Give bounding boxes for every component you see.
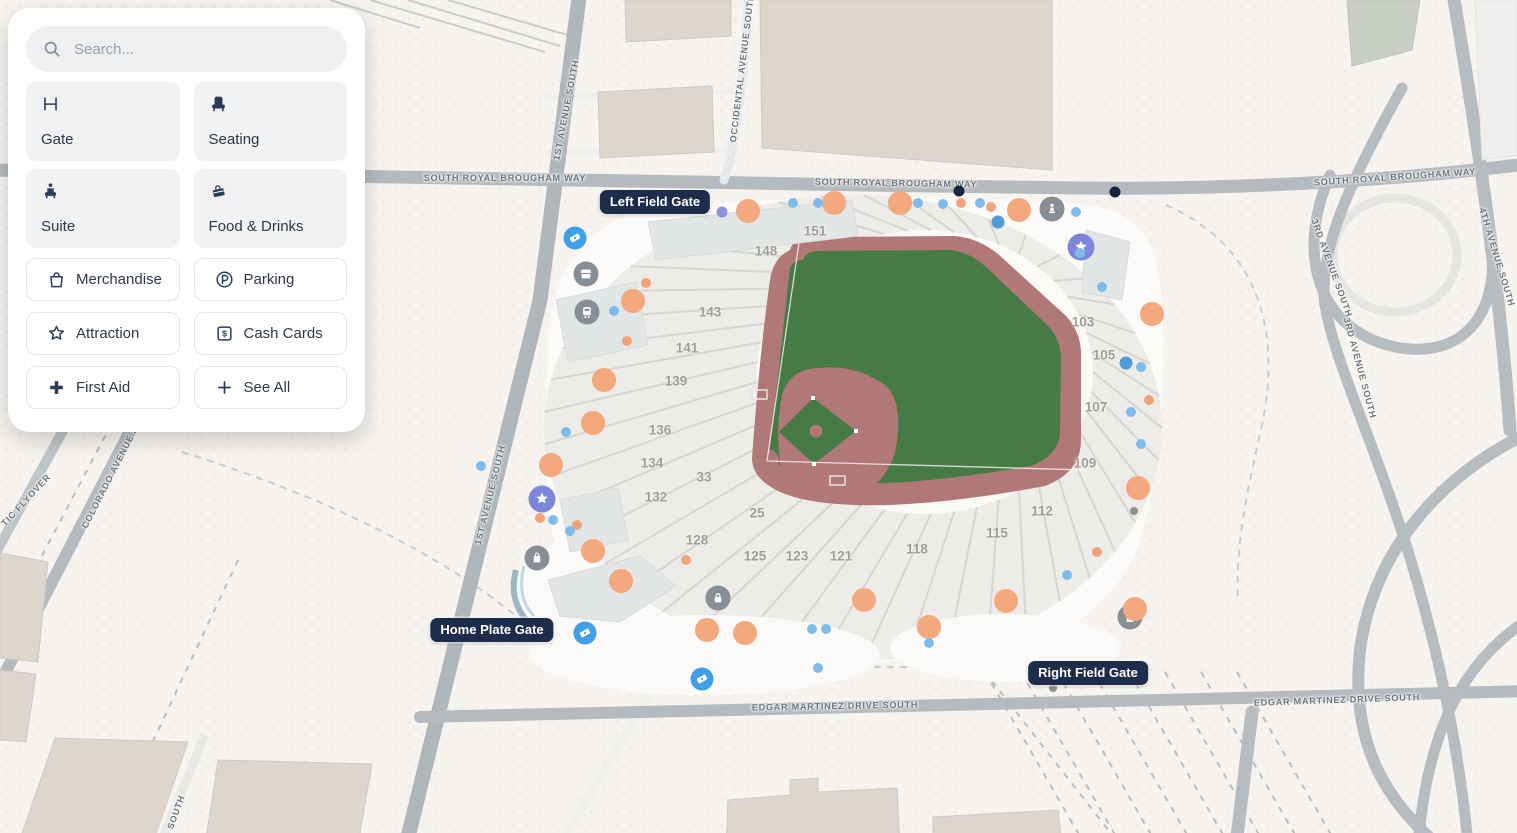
category-label: Merchandise — [76, 271, 162, 288]
marker-orange-large[interactable] — [1140, 302, 1164, 326]
section-number[interactable]: 118 — [906, 542, 928, 557]
section-number[interactable]: 143 — [699, 305, 722, 320]
marker-blue-small[interactable] — [813, 198, 823, 208]
category-first-aid[interactable]: First Aid — [26, 366, 180, 409]
marker-orange-small[interactable] — [681, 555, 691, 565]
marker-ticket[interactable] — [691, 668, 714, 691]
marker-blue-small[interactable] — [561, 427, 571, 437]
marker-blue-small[interactable] — [1126, 407, 1136, 417]
section-number[interactable]: 132 — [645, 490, 668, 505]
marker-blue-small[interactable] — [788, 198, 798, 208]
search-input[interactable] — [72, 40, 331, 59]
marker-statue[interactable] — [1040, 197, 1065, 222]
first-aid-icon — [47, 378, 66, 397]
marker-orange-large[interactable] — [621, 289, 645, 313]
marker-blue-small[interactable] — [1136, 439, 1146, 449]
marker-orange-small[interactable] — [956, 198, 966, 208]
section-number[interactable]: 123 — [786, 549, 809, 564]
marker-blue-small[interactable] — [1136, 362, 1146, 372]
marker-orange-small[interactable] — [1092, 547, 1102, 557]
street-label: 3RD AVENUE SOUTH — [1342, 317, 1379, 420]
marker-orange-large[interactable] — [994, 589, 1018, 613]
category-label: First Aid — [76, 379, 130, 396]
marker-orange-large[interactable] — [888, 191, 912, 215]
category-label: Suite — [41, 218, 75, 235]
marker-blue-small[interactable] — [807, 624, 817, 634]
section-number[interactable]: 25 — [749, 506, 764, 521]
marker-orange-small[interactable] — [986, 202, 996, 212]
marker-blue-small[interactable] — [813, 663, 823, 673]
category-label: Gate — [41, 131, 74, 148]
section-number[interactable]: 115 — [986, 526, 1008, 541]
category-attraction[interactable]: Attraction — [26, 312, 180, 355]
marker-blue-small[interactable] — [1097, 282, 1107, 292]
street-label: OCCIDENTAL AVENUE SOUTH — [728, 0, 756, 143]
street-label: 1ST AVENUE SOUTH — [473, 444, 507, 546]
marker-blue-small[interactable] — [1075, 248, 1085, 258]
section-number[interactable]: 148 — [755, 244, 778, 259]
section-number[interactable]: 103 — [1072, 315, 1095, 330]
section-number[interactable]: 33 — [696, 470, 711, 485]
marker-ticket[interactable] — [564, 227, 587, 250]
marker-ticket[interactable] — [574, 622, 597, 645]
marker-orange-large[interactable] — [581, 539, 605, 563]
category-grid-secondary: MerchandiseParkingAttraction$Cash CardsF… — [26, 258, 347, 409]
street-label: 4TH AVENUE SOUTH — [1477, 206, 1517, 307]
marker-orange-large[interactable] — [1126, 476, 1150, 500]
section-number[interactable]: 141 — [676, 341, 699, 356]
suite-icon — [41, 182, 60, 201]
street-label: EDGAR MARTINEZ DRIVE SOUTH — [752, 700, 918, 713]
street-label: 3RD AVENUE SOUTH — [1310, 218, 1355, 319]
category-label: Cash Cards — [244, 325, 323, 342]
marker-blue-small[interactable] — [975, 198, 985, 208]
category-seating[interactable]: Seating — [194, 82, 348, 161]
marker-blue-small[interactable] — [938, 199, 948, 209]
street-label: 1ST AVENUE SOUTH — [551, 59, 580, 161]
section-number[interactable]: 107 — [1085, 400, 1108, 415]
category-gate[interactable]: Gate — [26, 82, 180, 161]
marker-gray-dot[interactable] — [1130, 507, 1138, 515]
marker-blue-medium[interactable] — [992, 216, 1005, 229]
category-label: See All — [244, 379, 291, 396]
marker-blue-small[interactable] — [1062, 570, 1072, 580]
map-label-home-plate-gate[interactable]: Home Plate Gate — [430, 618, 553, 642]
svg-text:$: $ — [222, 329, 227, 339]
section-number[interactable]: 134 — [641, 456, 664, 471]
street-label: EDGAR MARTINEZ DRIVE SOUTH — [1254, 692, 1421, 708]
seating-icon — [209, 95, 228, 114]
marker-orange-large[interactable] — [1007, 198, 1031, 222]
marker-blue-small[interactable] — [913, 198, 923, 208]
marker-orange-large[interactable] — [917, 615, 941, 639]
marker-orange-small[interactable] — [1144, 395, 1154, 405]
category-food-drinks[interactable]: Food & Drinks — [194, 169, 348, 248]
marker-blue-small[interactable] — [565, 526, 575, 536]
marker-gray-dot[interactable] — [1049, 684, 1057, 692]
section-number[interactable]: 136 — [649, 423, 672, 438]
marker-orange-large[interactable] — [736, 199, 760, 223]
marker-blue-small[interactable] — [609, 306, 619, 316]
marker-star[interactable] — [529, 486, 556, 513]
marker-navy-dot[interactable] — [1110, 187, 1121, 198]
section-number[interactable]: 105 — [1093, 348, 1116, 363]
marker-blue-small[interactable] — [548, 515, 558, 525]
merchandise-icon — [47, 270, 66, 289]
marker-orange-large[interactable] — [609, 569, 633, 593]
category-suite[interactable]: Suite — [26, 169, 180, 248]
section-number[interactable]: 121 — [830, 549, 853, 564]
parking-icon — [215, 270, 234, 289]
street-label: COLORADO AVENUE S — [80, 424, 140, 530]
category-label: Food & Drinks — [209, 218, 304, 235]
marker-orange-large[interactable] — [592, 368, 616, 392]
marker-blue-medium[interactable] — [1120, 357, 1133, 370]
marker-lavender[interactable] — [717, 207, 728, 218]
marker-navy-dot[interactable] — [954, 186, 965, 197]
category-label: Attraction — [76, 325, 139, 342]
marker-orange-small[interactable] — [641, 278, 651, 288]
map-label-left-field-gate[interactable]: Left Field Gate — [600, 190, 710, 214]
marker-orange-large[interactable] — [1123, 597, 1147, 621]
section-number[interactable]: 128 — [686, 533, 709, 548]
category-grid-primary: GateSeatingSuiteFood & Drinks — [26, 82, 347, 248]
search-icon — [42, 39, 62, 59]
marker-shop[interactable] — [574, 262, 599, 287]
marker-orange-small[interactable] — [622, 336, 632, 346]
marker-orange-large[interactable] — [695, 618, 719, 642]
marker-orange-large[interactable] — [822, 191, 846, 215]
category-cash-cards[interactable]: $Cash Cards — [194, 312, 348, 355]
map-label-right-field-gate[interactable]: Right Field Gate — [1028, 661, 1148, 685]
category-merchandise[interactable]: Merchandise — [26, 258, 180, 301]
search-box[interactable] — [26, 26, 347, 72]
marker-orange-large[interactable] — [733, 621, 757, 645]
category-see-all[interactable]: See All — [194, 366, 348, 409]
marker-orange-large[interactable] — [581, 411, 605, 435]
section-number[interactable]: 112 — [1031, 504, 1053, 519]
marker-train[interactable] — [575, 300, 600, 325]
section-number[interactable]: 139 — [665, 374, 688, 389]
category-label: Seating — [209, 131, 260, 148]
marker-blue-small[interactable] — [1071, 207, 1081, 217]
street-label: SOUTH ROYAL BROUGHAM WAY — [1314, 166, 1477, 187]
gate-icon — [41, 95, 60, 114]
section-number[interactable]: 109 — [1074, 456, 1097, 471]
marker-blue-small[interactable] — [476, 461, 486, 471]
section-number[interactable]: 151 — [804, 224, 827, 239]
marker-lock[interactable] — [706, 586, 731, 611]
street-label: SOUTH ROYAL BROUGHAM WAY — [424, 173, 586, 183]
marker-orange-small[interactable] — [535, 513, 545, 523]
category-parking[interactable]: Parking — [194, 258, 348, 301]
attraction-icon — [47, 324, 66, 343]
street-label: SOUTH ROYAL BROUGHAM WAY — [815, 177, 978, 190]
search-panel: GateSeatingSuiteFood & Drinks Merchandis… — [8, 8, 365, 432]
section-number[interactable]: 125 — [744, 549, 767, 564]
marker-bag[interactable] — [525, 546, 550, 571]
marker-orange-large[interactable] — [852, 588, 876, 612]
street-label: SOUTH — [165, 794, 187, 831]
marker-blue-small[interactable] — [821, 624, 831, 634]
see-all-icon — [215, 378, 234, 397]
category-label: Parking — [244, 271, 295, 288]
food-drinks-icon — [209, 182, 228, 201]
marker-blue-small[interactable] — [924, 638, 934, 648]
cash-cards-icon: $ — [215, 324, 234, 343]
street-label: TIC FLYOVER — [0, 472, 53, 528]
marker-orange-large[interactable] — [539, 453, 563, 477]
